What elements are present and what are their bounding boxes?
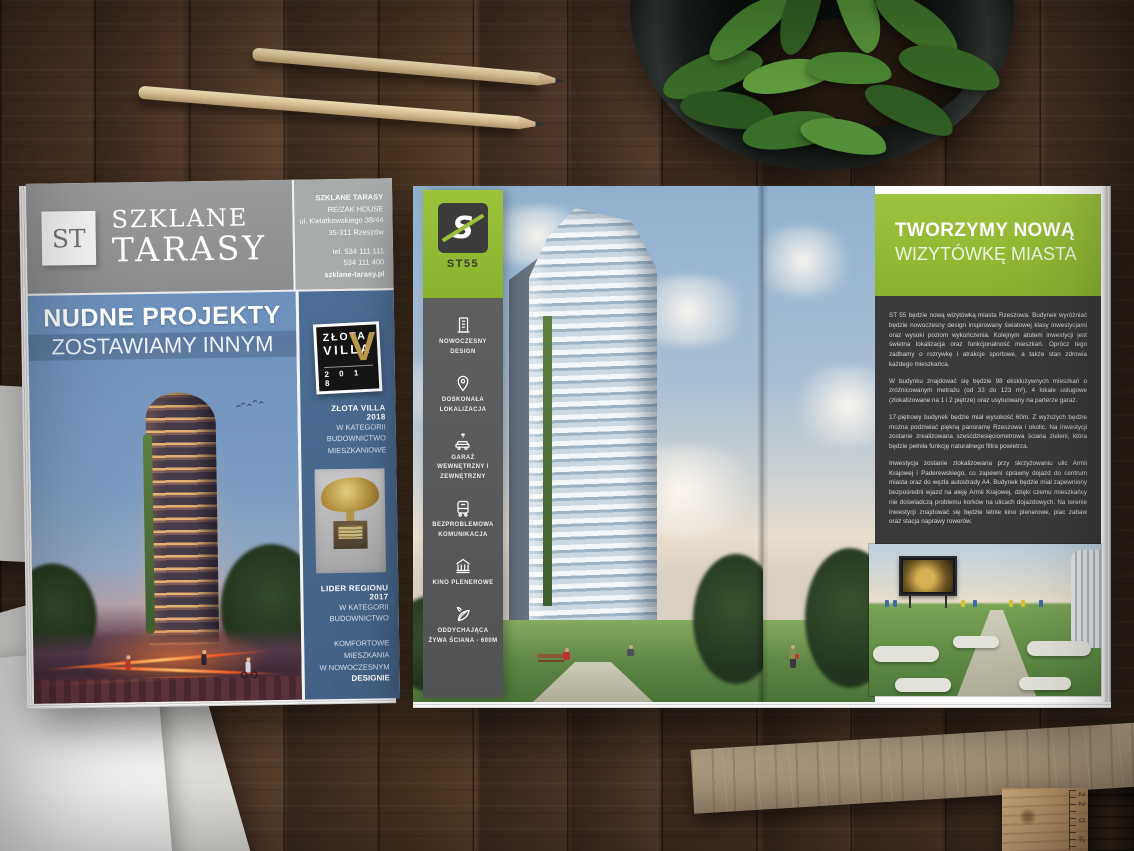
magazine-cover: ST SZKLANE TARASY SZKLANE TARASY RE/ZAK … <box>26 178 400 704</box>
residential-tower-night <box>145 392 219 655</box>
feature-label: DOSKONAŁA LOKALIZACJA <box>423 396 503 416</box>
cover-body: NUDNE PROJEKTY ZOSTAWIAMY INNYM <box>28 288 400 704</box>
garage-car-icon <box>453 431 473 451</box>
deck-chair <box>885 600 889 607</box>
tagline-line4: DESIGNIE <box>315 672 390 686</box>
person-torso <box>563 652 570 660</box>
cover-tagline: KOMFORTOWE MIESZKANIA W NOWOCZESNYM DESI… <box>304 637 400 686</box>
feature-label: NOWOCZESNY DESIGN <box>423 338 503 358</box>
person-legs <box>790 659 796 668</box>
spread-right-page: TWORZYMY NOWĄ WIZYTÓWKĘ MIASTA ST 55 będ… <box>763 186 1111 702</box>
white-planter <box>953 636 999 648</box>
headline-band: TWORZYMY NOWĄ WIZYTÓWKĘ MIASTA <box>875 194 1101 296</box>
contact-website: szklane-tarasy.pl <box>299 268 384 281</box>
trophy-photo <box>314 468 386 573</box>
award1-title: ZŁOTA VILLA 2018 <box>310 403 385 422</box>
standing-person <box>627 645 634 656</box>
st-logo-text: ST <box>52 223 86 253</box>
badge-gold-v: V <box>348 324 377 369</box>
screen-leg <box>909 596 911 608</box>
pedestrian-figure <box>201 654 206 665</box>
st-logo-box: ST <box>41 211 96 266</box>
pedestrian-figure <box>125 659 130 670</box>
open-brochure-spread: S ST55 NOWOCZESNY DESIGN DOSKONAŁA LOKAL… <box>413 186 1111 708</box>
sidebar-feature-list: NOWOCZESNY DESIGN DOSKONAŁA LOKALIZACJA … <box>423 298 503 698</box>
sidebar-logo-block: S ST55 <box>423 190 503 298</box>
cover-front: ST SZKLANE TARASY SZKLANE TARASY RE/ZAK … <box>26 178 400 704</box>
sitting-person <box>563 648 570 660</box>
bus-icon <box>453 498 473 518</box>
center-fold-shadow <box>757 186 769 702</box>
st55-logo-label: ST55 <box>447 258 479 270</box>
spread-headline-line1: TWORZYMY NOWĄ <box>895 220 1101 242</box>
feature-label: KINO PLENEROWE <box>423 579 503 589</box>
award2-title: LIDER REGIONU 2017 <box>313 583 388 602</box>
cover-headline-line2: ZOSTAWIAMY INNYM <box>28 331 296 361</box>
cover-ground <box>33 628 302 704</box>
white-planter <box>1027 641 1091 656</box>
deck-chair <box>961 600 965 607</box>
award-badge-frame: ZŁOTA VILLA V 2 0 1 8 <box>312 321 381 394</box>
feature-item: GARAŻ WEWNĘTRZNY I ZEWNĘTRZNY <box>423 431 503 484</box>
brand-title: SZKLANE TARASY <box>111 203 267 269</box>
deck-chair <box>1021 600 1025 607</box>
cloud <box>783 366 875 446</box>
wood-ruler-piece: 22 0 ¾ <box>1002 788 1088 851</box>
page-edge-bottom <box>413 702 1111 708</box>
spread-left-page: S ST55 NOWOCZESNY DESIGN DOSKONAŁA LOKAL… <box>413 186 763 702</box>
cover-brand-block: ST SZKLANE TARASY <box>26 180 294 294</box>
contact-block: SZKLANE TARASY RE/ZAK HOUSE ul. Kwiatkow… <box>294 178 394 290</box>
award2-sub2: BUDOWNICTWO <box>314 612 389 624</box>
deck-chair <box>1039 600 1043 607</box>
cover-sidebar: ZŁOTA VILLA V 2 0 1 8 ZŁOTA VILLA 2018 W… <box>299 290 400 699</box>
birds-icon <box>234 394 272 416</box>
cover-headline: NUDNE PROJEKTY ZOSTAWIAMY INNYM <box>28 301 297 361</box>
brand-title-line2: TARASY <box>112 228 268 269</box>
page-curl-edge <box>1102 186 1111 702</box>
body-text-panel: ST 55 będzie nową wizytówką miasta Rzesz… <box>875 296 1101 546</box>
pavement <box>34 676 302 704</box>
photo-strip <box>763 186 875 702</box>
contact-phone2: 534 111 400 <box>299 256 384 269</box>
park-bench <box>537 654 565 658</box>
body-paragraph: Inwestycja zostanie zlokalizowana przy s… <box>889 459 1087 527</box>
badge-year: 2 0 1 8 <box>324 364 374 388</box>
feature-item: BEZPROBLEMOWA KOMUNIKACJA <box>423 498 503 541</box>
white-planter <box>1019 677 1071 690</box>
cinema-icon <box>453 556 473 576</box>
trophy-plaque <box>338 525 362 538</box>
body-paragraph: 17-piętrowy budynek będzie miał wysokość… <box>889 413 1087 452</box>
st55-logo: S <box>438 203 488 253</box>
body-paragraph: W budynku znajdować się będzie 98 eksklu… <box>889 377 1087 406</box>
outdoor-cinema-render <box>869 544 1101 696</box>
body-paragraph: ST 55 będzie nową wizytówką miasta Rzesz… <box>889 311 1087 370</box>
feature-item: ODDYCHAJĄCA ŻYWA ŚCIANA - 600M <box>423 604 503 647</box>
white-planter <box>895 678 951 692</box>
zlota-villa-badge: ZŁOTA VILLA V 2 0 1 8 <box>316 324 379 391</box>
cinema-screen <box>899 556 957 596</box>
building-edge <box>1071 550 1101 648</box>
screen-leg <box>945 596 947 608</box>
spread-sidebar: S ST55 NOWOCZESNY DESIGN DOSKONAŁA LOKAL… <box>423 190 503 698</box>
sky-continuation <box>763 186 875 702</box>
cover-headline-line1: NUDNE PROJEKTY <box>28 301 296 334</box>
cloud <box>763 226 863 296</box>
bicycle-wheel <box>251 671 258 678</box>
white-planter <box>873 646 939 662</box>
contact-city: 35-311 Rzeszów <box>299 226 384 239</box>
desk-scene: 22 0 ¾ ST SZKLANE TARASY SZKLANE TARASY <box>0 0 1134 851</box>
feature-label: ODDYCHAJĄCA ŻYWA ŚCIANA - 600M <box>423 627 503 647</box>
spread-headline-line2: WIZYTÓWKĘ MIASTA <box>895 244 1101 265</box>
cover-artwork: NUDNE PROJEKTY ZOSTAWIAMY INNYM <box>28 292 302 704</box>
feature-item: DOSKONAŁA LOKALIZACJA <box>423 373 503 416</box>
ruler-pencil-marks: 22 0 ¾ <box>1077 792 1086 849</box>
cover-header: ST SZKLANE TARASY SZKLANE TARASY RE/ZAK … <box>26 178 394 294</box>
award1-sub3: MIESZKANIOWE <box>311 444 386 456</box>
feature-label: BEZPROBLEMOWA KOMUNIKACJA <box>423 521 503 541</box>
award1-caption: ZŁOTA VILLA 2018 W KATEGORII BUDOWNICTWO… <box>300 403 396 456</box>
building-icon <box>453 315 473 335</box>
feature-item: KINO PLENEROWE <box>423 556 503 589</box>
cyclist-figure <box>245 661 250 672</box>
deck-chair <box>1009 600 1013 607</box>
person-torso <box>627 649 634 656</box>
bicycle-wheel <box>241 671 248 678</box>
tagline-line1: KOMFORTOWE <box>314 638 389 651</box>
feature-label: GARAŻ WEWNĘTRZNY I ZEWNĘTRZNY <box>423 454 503 484</box>
tagline-line2: MIESZKANIA <box>314 649 389 662</box>
award2-caption: LIDER REGIONU 2017 W KATEGORII BUDOWNICT… <box>303 583 399 625</box>
contact-name: SZKLANE TARASY <box>298 191 383 204</box>
deck-chair <box>973 600 977 607</box>
leaf-icon <box>453 604 473 624</box>
award1-sub2: BUDOWNICTWO <box>311 433 386 445</box>
standing-woman <box>789 645 796 668</box>
feature-item: NOWOCZESNY DESIGN <box>423 315 503 358</box>
deck-chair <box>893 600 897 607</box>
screen-image <box>903 560 953 592</box>
location-pin-icon <box>453 373 473 393</box>
tower-green-wall <box>543 316 552 606</box>
red-bag <box>795 654 799 659</box>
